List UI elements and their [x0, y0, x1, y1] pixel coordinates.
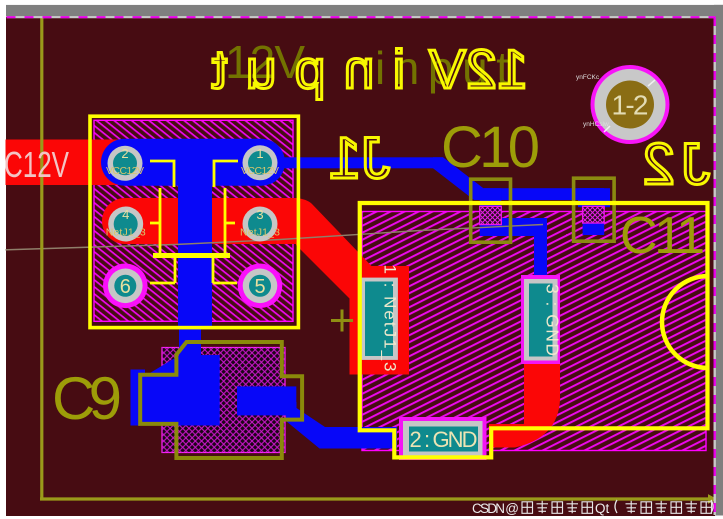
svg-text:ynHCslw: ynHCslw — [583, 121, 609, 128]
svg-text:4: 4 — [122, 207, 129, 222]
svg-text:1 : NetJ1_3: 1 : NetJ1_3 — [381, 265, 400, 372]
svg-text:3: 3 — [256, 207, 263, 222]
svg-text:6: 6 — [120, 276, 131, 298]
svg-text:J2: J2 — [637, 132, 710, 197]
svg-text:Qt: Qt — [595, 501, 610, 516]
svg-text:VCC12V: VCC12V — [106, 165, 144, 177]
svg-text:C9: C9 — [52, 365, 122, 432]
svg-text:CSDN @: CSDN @ — [472, 501, 519, 516]
svg-text:12V: 12V — [429, 38, 528, 100]
svg-text:3 : GND: 3 : GND — [543, 284, 563, 356]
svg-text:C11: C11 — [620, 207, 705, 265]
svg-text:C12V: C12V — [4, 144, 69, 185]
svg-text:C10: C10 — [441, 115, 540, 180]
svg-text:VCC12V: VCC12V — [241, 165, 279, 177]
svg-text:J1: J1 — [329, 126, 390, 191]
svg-text:5: 5 — [254, 276, 265, 298]
svg-text:2: 2 — [121, 146, 128, 161]
svg-text:2 : GND: 2 : GND — [410, 427, 478, 452]
svg-text:NetJ1_3: NetJ1_3 — [240, 227, 280, 239]
svg-text:1: 1 — [256, 146, 263, 161]
svg-text:1-2: 1-2 — [612, 90, 649, 121]
svg-text:ynFCKc: ynFCKc — [576, 74, 600, 81]
svg-text:NetJ1_3: NetJ1_3 — [106, 227, 146, 239]
